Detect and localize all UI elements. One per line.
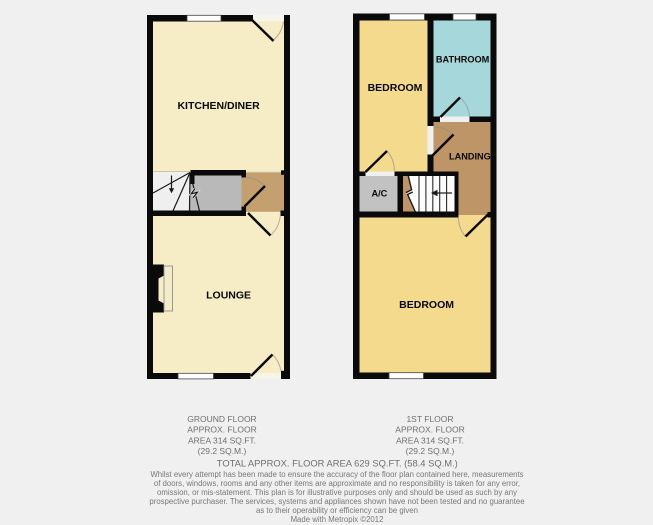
svg-text:(29.2 SQ.M.): (29.2 SQ.M.) bbox=[198, 446, 247, 456]
svg-text:KITCHEN/DINER: KITCHEN/DINER bbox=[177, 100, 260, 112]
svg-text:omission, or mis-statement. Th: omission, or mis-statement. This plan is… bbox=[157, 488, 517, 497]
svg-text:prospective purchaser. The ser: prospective purchaser. The services, sys… bbox=[149, 497, 524, 506]
svg-text:APPROX. FLOOR: APPROX. FLOOR bbox=[395, 425, 464, 435]
svg-text:LOUNGE: LOUNGE bbox=[206, 290, 251, 302]
svg-text:APPROX. FLOOR: APPROX. FLOOR bbox=[187, 425, 256, 435]
svg-text:AREA 314 SQ.FT.: AREA 314 SQ.FT. bbox=[396, 435, 464, 445]
svg-text:TOTAL APPROX. FLOOR AREA 629 S: TOTAL APPROX. FLOOR AREA 629 SQ.FT. (58.… bbox=[217, 458, 458, 469]
svg-text:BEDROOM: BEDROOM bbox=[368, 82, 423, 94]
svg-text:1ST FLOOR: 1ST FLOOR bbox=[406, 414, 453, 424]
svg-text:LANDING: LANDING bbox=[449, 151, 491, 161]
svg-text:Whilst every attempt has been: Whilst every attempt has been made to en… bbox=[150, 470, 523, 479]
svg-text:as to their operability or eff: as to their operability or efficiency ca… bbox=[256, 506, 418, 515]
svg-text:(29.2 SQ.M.): (29.2 SQ.M.) bbox=[406, 446, 455, 456]
svg-text:AREA 314 SQ.FT.: AREA 314 SQ.FT. bbox=[188, 435, 256, 445]
svg-text:BATHROOM: BATHROOM bbox=[436, 55, 490, 65]
svg-text:of doors, windows, rooms and a: of doors, windows, rooms and any other i… bbox=[154, 479, 520, 488]
svg-text:A/C: A/C bbox=[371, 189, 387, 199]
svg-text:GROUND FLOOR: GROUND FLOOR bbox=[187, 414, 256, 424]
svg-text:Made with Metropix ©2012: Made with Metropix ©2012 bbox=[291, 515, 384, 524]
svg-text:BEDROOM: BEDROOM bbox=[399, 299, 454, 311]
